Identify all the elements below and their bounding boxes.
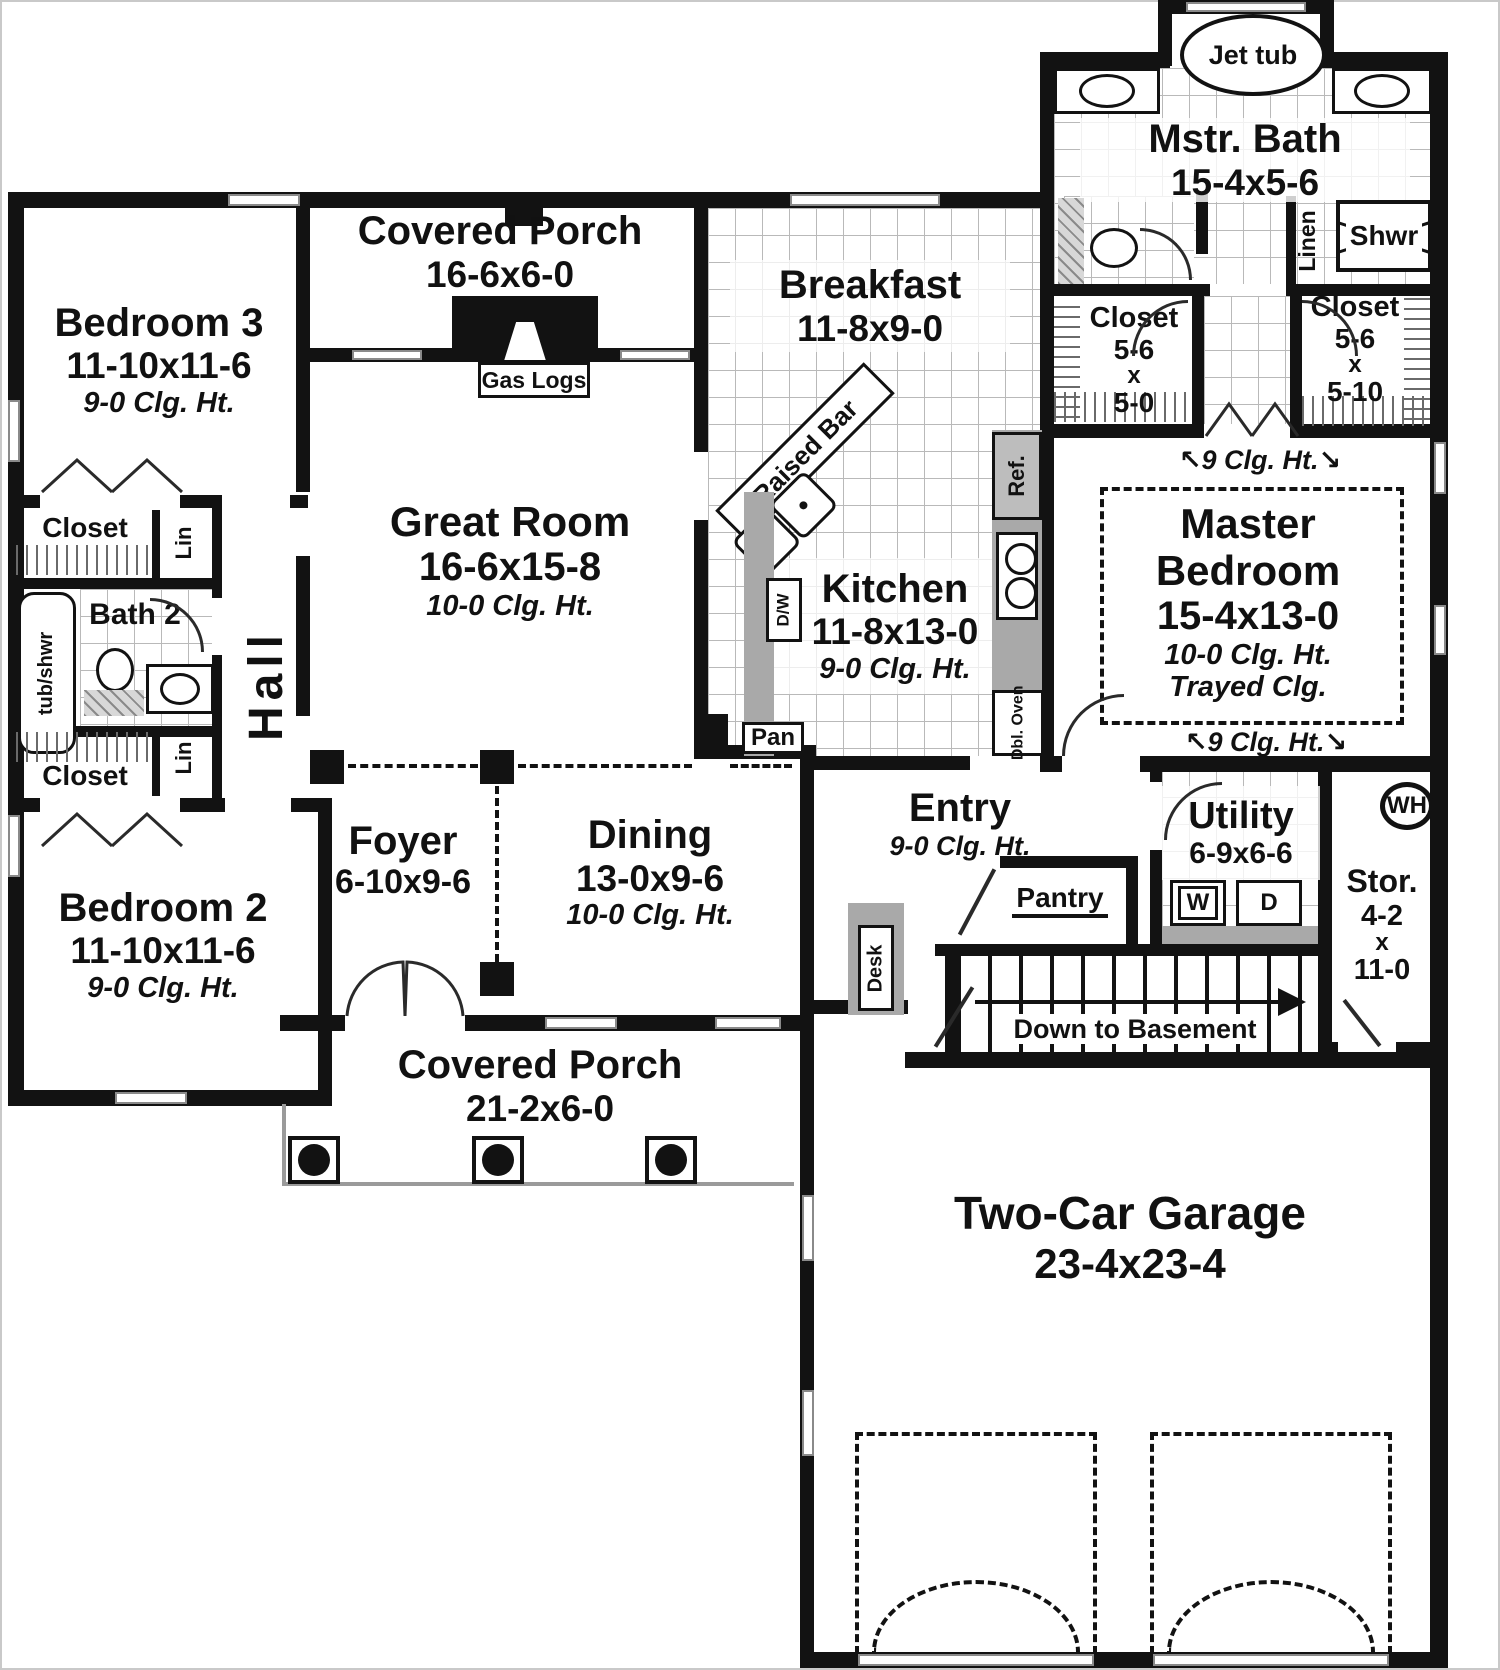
window: [802, 1390, 814, 1456]
cooktop: [996, 532, 1038, 620]
toilet: [96, 648, 134, 692]
window: [620, 350, 690, 360]
bedroom3-double-door-icon: [38, 452, 188, 494]
toilet: [1090, 228, 1138, 268]
closet-x: x: [1127, 365, 1140, 387]
master-bedroom-label: Master Bedroom 15-4x13-0 10-0 Clg. Ht. T…: [1104, 495, 1392, 709]
dw-label: D/W: [774, 593, 794, 626]
utility-counter: [1162, 926, 1318, 944]
room-dims: 21-2x6-0: [466, 1088, 614, 1129]
porch-bottom-label: Covered Porch 21-2x6-0: [360, 1040, 720, 1132]
column: [694, 714, 728, 752]
stor-x: x: [1375, 932, 1388, 954]
room-dims: 11-10x11-6: [66, 345, 251, 386]
double-oven: Dbl. Oven: [992, 690, 1044, 756]
porch-column: [645, 1136, 697, 1184]
window: [115, 1092, 187, 1104]
wall: [1040, 52, 1054, 772]
washer-label: W: [1178, 886, 1219, 920]
room-ceiling: 10-0 Clg. Ht.: [566, 899, 734, 931]
gas-logs-box: Gas Logs: [478, 362, 590, 398]
closet-x: x: [1348, 354, 1361, 376]
stor-w: 4-2: [1361, 900, 1403, 932]
window: [352, 350, 422, 360]
room-name: Dining: [588, 813, 712, 858]
stairs-label: Down to Basement: [985, 1012, 1285, 1046]
dryer: D: [1236, 880, 1302, 926]
floor-plan: Covered Porch 16-6x6-0 Gas Logs Bedroom …: [0, 0, 1500, 1670]
wall: [1140, 756, 1444, 772]
bedroom3-label: Bedroom 3 11-10x11-6 9-0 Clg. Ht.: [26, 290, 292, 430]
wall: [800, 756, 814, 1020]
porch-edge: [282, 1182, 794, 1186]
wall: [1000, 856, 1138, 868]
wall: [694, 520, 708, 720]
opening-dashed-line: [518, 764, 692, 768]
bedroom2-label: Bedroom 2 11-10x11-6 9-0 Clg. Ht.: [20, 870, 306, 1020]
dbl-oven-label: Dbl. Oven: [1009, 686, 1027, 761]
closet-label: Closet: [42, 760, 128, 791]
pantry-label: Pantry: [990, 880, 1130, 920]
window: [8, 815, 20, 877]
wall: [1150, 850, 1162, 956]
wall: [905, 1052, 1448, 1068]
room-name: Great Room: [390, 498, 630, 545]
arrow-se-icon: ↘: [1325, 727, 1348, 757]
jet-tub-label: Jet tub: [1184, 18, 1322, 92]
room-name: Entry: [909, 786, 1011, 831]
column-dot: [298, 1144, 330, 1176]
room-ceiling: 9-0 Clg. Ht.: [819, 653, 970, 685]
porch-top-label: Covered Porch 16-6x6-0: [320, 212, 680, 292]
tub-shwr-label: tub/shwr: [36, 631, 59, 714]
garage-door-threshold: [858, 1654, 1094, 1666]
room-ceiling2: Trayed Clg.: [1169, 671, 1326, 703]
window: [1186, 2, 1306, 12]
room-ceiling: 9-0 Clg. Ht.: [87, 972, 238, 1004]
room-name: Hall: [240, 629, 294, 741]
room-name: Covered Porch: [398, 1043, 683, 1088]
vanity-right: [1332, 68, 1432, 114]
room-name2: Bedroom: [1156, 547, 1340, 594]
window: [545, 1017, 617, 1029]
window: [802, 1195, 814, 1261]
wall: [1290, 424, 1444, 438]
room-dims: 6-10x9-6: [335, 863, 471, 901]
wall: [694, 362, 708, 452]
pan-label: Pan: [751, 724, 795, 752]
closet-h: 5-0: [1114, 387, 1154, 418]
gas-logs-label: Gas Logs: [482, 367, 587, 394]
shwr-label-wrap: Shwr: [1340, 204, 1428, 268]
wall: [800, 1020, 814, 1668]
wall: [800, 756, 970, 770]
closet1-label: Closet: [18, 512, 152, 544]
room-dims: 13-0x9-6: [576, 858, 724, 899]
master-bath-label: Mstr. Bath 15-4x5-6: [1080, 118, 1410, 202]
shwr-text: Shwr: [1346, 220, 1422, 251]
wall: [1318, 756, 1332, 1056]
room-dims: 15-4x13-0: [1157, 594, 1339, 639]
great-room-label: Great Room 16-6x15-8 10-0 Clg. Ht.: [340, 470, 680, 650]
room-name: Stor.: [1346, 864, 1417, 900]
lin-label: Lin: [172, 527, 197, 560]
bedroom3-door-opening: [40, 493, 180, 510]
window: [1434, 605, 1446, 655]
sink: [1354, 74, 1410, 108]
linen2-label: Lin: [156, 730, 212, 786]
room-name: Two-Car Garage: [954, 1188, 1306, 1240]
closet-label: Closet: [42, 512, 128, 543]
room-ceiling: 9-0 Clg. Ht.: [83, 387, 234, 419]
hall-bedroom3-door-opening: [222, 493, 290, 510]
wall: [1320, 52, 1444, 68]
water-heater: WH: [1380, 782, 1434, 830]
front-door-icon: [343, 952, 467, 1018]
room-ceiling: 10-0 Clg. Ht.: [426, 590, 594, 622]
window: [715, 1017, 781, 1029]
column: [310, 750, 344, 784]
clg9-text: 9 Clg. Ht.: [1201, 445, 1318, 475]
wall: [694, 192, 708, 362]
desk-label: Desk: [865, 944, 888, 992]
room-dims: 6-9x6-6: [1189, 837, 1292, 871]
pantry-cabinet: Pan: [742, 722, 804, 754]
room-name: Foyer: [349, 819, 458, 864]
porch-edge: [282, 1104, 286, 1186]
wall: [1150, 944, 1330, 956]
stor-h: 11-0: [1354, 954, 1410, 986]
dryer-label: D: [1254, 889, 1283, 917]
room-dims: 11-8x9-0: [797, 308, 943, 349]
closet-rod-hatch: [16, 732, 152, 762]
arrow-nw-icon: ↖: [1179, 445, 1202, 475]
master-door-arc: [1062, 694, 1124, 756]
bath2-counter: [84, 690, 144, 716]
arrow-nw-icon: ↖: [1185, 727, 1208, 757]
wall: [945, 950, 957, 1060]
room-dims: 15-4x5-6: [1171, 162, 1319, 203]
window: [8, 400, 20, 462]
closet-rod-hatch: [16, 545, 152, 575]
room-name: Kitchen: [822, 567, 969, 612]
room-dims: 16-6x6-0: [426, 254, 574, 295]
vanity-left: [1054, 68, 1160, 114]
stairs-direction-line: [975, 1000, 1281, 1004]
opening-dashed-line: [348, 764, 478, 768]
room-dims: 23-4x23-4: [1034, 1240, 1225, 1287]
room-name: Covered Porch: [358, 209, 643, 254]
dining-label: Dining 13-0x9-6 10-0 Clg. Ht.: [530, 795, 770, 950]
window: [790, 194, 940, 206]
room-name: Mstr. Bath: [1148, 117, 1341, 162]
closet-h: 5-10: [1327, 376, 1383, 407]
dishwasher: D/W: [766, 578, 802, 642]
room-dims: 11-8x13-0: [812, 611, 979, 652]
desk: Desk: [858, 925, 894, 1011]
wall: [212, 578, 222, 598]
room-name: Master: [1180, 500, 1315, 547]
foyer-label: Foyer 6-10x9-6: [308, 810, 498, 910]
wall: [8, 578, 214, 589]
column: [480, 962, 514, 996]
porch-column: [472, 1136, 524, 1184]
porch-column: [288, 1136, 340, 1184]
breakfast-label: Breakfast 11-8x9-0: [730, 260, 1010, 352]
wall: [296, 192, 310, 492]
garage-door-threshold: [1153, 1654, 1389, 1666]
room-dims: 11-10x11-6: [70, 930, 255, 971]
wall: [1318, 1042, 1338, 1058]
wall: [212, 508, 222, 578]
jet-tub-text: Jet tub: [1209, 40, 1298, 70]
window: [1434, 442, 1446, 494]
window: [228, 194, 300, 206]
wall: [1150, 756, 1162, 782]
washer: W: [1170, 880, 1226, 926]
room-name: Bedroom 3: [55, 301, 264, 346]
ceiling-note-top: ↖9 Clg. Ht.↘: [1160, 444, 1360, 476]
linen1-label: Lin: [156, 515, 212, 571]
room-name: Bedroom 2: [59, 886, 268, 931]
room-ceiling: 10-0 Clg. Ht.: [1164, 639, 1332, 671]
opening-dashed-line: [730, 764, 792, 768]
arrow-se-icon: ↘: [1319, 445, 1342, 475]
room-name: Breakfast: [779, 263, 961, 308]
linen-text: Linen: [1295, 210, 1321, 271]
clg9-top: ↖9 Clg. Ht.↘: [1179, 445, 1341, 475]
storage-door-leaf: [1343, 999, 1382, 1047]
refrigerator: Ref.: [992, 432, 1042, 520]
shower: Shwr: [1336, 200, 1432, 272]
wall: [1040, 284, 1210, 296]
ref-label: Ref.: [1004, 455, 1030, 497]
entry-label: Entry 9-0 Clg. Ht.: [860, 782, 1060, 866]
master-double-door-icon: [1202, 398, 1302, 438]
room-name: Pantry: [1012, 882, 1107, 917]
room-dims: 16-6x15-8: [419, 545, 601, 590]
column-dot: [655, 1144, 687, 1176]
clg9-text: 9 Clg. Ht.: [1207, 727, 1324, 757]
clg9-bottom: ↖9 Clg. Ht.↘: [1185, 727, 1347, 757]
wall: [1040, 424, 1204, 438]
hall-bedroom2-door-opening: [225, 796, 291, 814]
toilet-room-wall-hatch: [1058, 198, 1084, 284]
column-dot: [482, 1144, 514, 1176]
sink: [1079, 74, 1135, 108]
dbl-label: Dbl.: [1009, 730, 1026, 760]
wall: [212, 726, 222, 798]
stairs-text: Down to Basement: [1007, 1014, 1262, 1044]
lin-label: Lin: [172, 742, 197, 775]
wall: [1396, 1042, 1448, 1058]
kitchen-label: Kitchen 11-8x13-0 9-0 Clg. Ht.: [770, 558, 1020, 694]
ceiling-note-bottom: ↖9 Clg. Ht.↘: [1166, 726, 1366, 758]
wall: [1040, 52, 1170, 68]
garage-label: Two-Car Garage 23-4x23-4: [900, 1180, 1360, 1295]
wall: [1040, 756, 1062, 772]
hall-label: Hall: [177, 650, 357, 720]
bedroom2-double-door-icon: [38, 806, 188, 848]
closet2-label: Closet: [18, 760, 152, 792]
wh-label: WH: [1387, 792, 1427, 820]
storage-label: Stor. 4-2 x 11-0: [1332, 850, 1432, 1000]
jet-tub: Jet tub: [1180, 14, 1326, 96]
oven-label: Oven: [1009, 686, 1026, 726]
column: [480, 750, 514, 784]
